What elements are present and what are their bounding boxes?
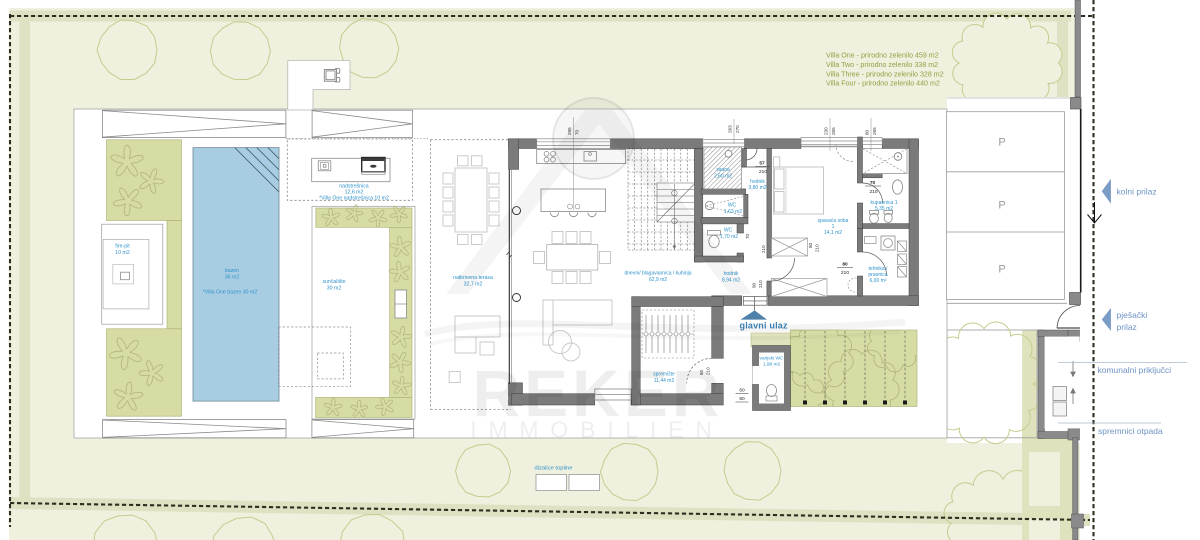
svg-text:230: 230 (824, 127, 829, 135)
svg-text:1,63 m2: 1,63 m2 (724, 209, 742, 215)
svg-text:dnevni/ blagavaonica / kuhinja: dnevni/ blagavaonica / kuhinja (625, 271, 692, 277)
svg-text:36 m2: 36 m2 (225, 275, 240, 281)
svg-text:14,1 m2: 14,1 m2 (824, 230, 842, 236)
svg-text:*Villa One nadstrešnica 10 m2: *Villa One nadstrešnica 10 m2 (319, 195, 389, 201)
svg-text:80: 80 (865, 129, 870, 135)
svg-text:90: 90 (752, 282, 757, 288)
svg-text:prilaz: prilaz (1117, 322, 1137, 332)
svg-text:263: 263 (728, 125, 733, 133)
svg-text:57: 57 (759, 161, 765, 167)
svg-text:komunalni priključci: komunalni priključci (1098, 365, 1172, 375)
svg-text:IMMOBILIEN: IMMOBILIEN (470, 417, 723, 443)
svg-text:pješački: pješački (1117, 310, 1148, 320)
svg-text:Villa Four - prirodno zelenilo: Villa Four - prirodno zelenilo 440 m2 (826, 80, 940, 88)
svg-text:*Villa One bazen 30 m2: *Villa One bazen 30 m2 (203, 290, 258, 296)
svg-text:270: 270 (735, 125, 740, 133)
svg-text:2,60 m2: 2,60 m2 (714, 174, 732, 180)
svg-text:fire-pit: fire-pit (115, 244, 130, 250)
svg-text:210: 210 (758, 280, 763, 288)
svg-text:6,00 m²: 6,00 m² (870, 278, 887, 284)
svg-text:1,70 m2: 1,70 m2 (720, 234, 738, 240)
svg-text:62,9 m2: 62,9 m2 (649, 277, 667, 283)
svg-text:spremnici otpada: spremnici otpada (1098, 426, 1163, 436)
svg-text:80: 80 (808, 242, 813, 248)
svg-text:10 m2: 10 m2 (115, 250, 130, 256)
svg-text:70: 70 (870, 180, 876, 186)
svg-text:60: 60 (739, 388, 745, 394)
svg-text:210: 210 (869, 189, 877, 195)
svg-text:WC: WC (724, 228, 733, 234)
svg-text:P: P (998, 200, 1005, 212)
svg-text:sauna: sauna (716, 167, 730, 173)
svg-text:60: 60 (739, 396, 745, 402)
svg-text:80: 80 (842, 262, 848, 268)
svg-text:1,98 m2: 1,98 m2 (763, 362, 781, 368)
svg-text:P: P (998, 264, 1005, 276)
svg-text:bazen: bazen (225, 268, 239, 274)
svg-text:Villa One - prirodno zelenilo: Villa One - prirodno zelenilo 459 m2 (826, 52, 939, 60)
svg-text:sunčalište: sunčalište (322, 279, 345, 285)
svg-text:265: 265 (872, 127, 877, 135)
svg-text:P: P (998, 137, 1005, 149)
svg-text:210: 210 (815, 244, 820, 252)
svg-text:Villa Three - prirodno zelenil: Villa Three - prirodno zelenilo 328 m2 (826, 70, 944, 78)
svg-text:3,80 m2: 3,80 m2 (748, 185, 766, 191)
svg-text:dizalice topline: dizalice topline (534, 466, 572, 472)
svg-text:5,35 m2: 5,35 m2 (875, 206, 893, 212)
svg-text:WC: WC (728, 203, 737, 209)
svg-text:70: 70 (745, 233, 750, 239)
svg-text:vanjski WC: vanjski WC (760, 356, 785, 362)
svg-text:210: 210 (761, 245, 766, 253)
svg-text:265: 265 (831, 127, 836, 135)
svg-text:Villa Two - prirodno zelenilo: Villa Two - prirodno zelenilo 338 m2 (826, 61, 938, 69)
svg-text:210: 210 (841, 270, 849, 276)
svg-text:210: 210 (759, 169, 767, 175)
svg-text:30 m2: 30 m2 (327, 286, 342, 292)
svg-text:kolni prilaz: kolni prilaz (1117, 187, 1157, 197)
